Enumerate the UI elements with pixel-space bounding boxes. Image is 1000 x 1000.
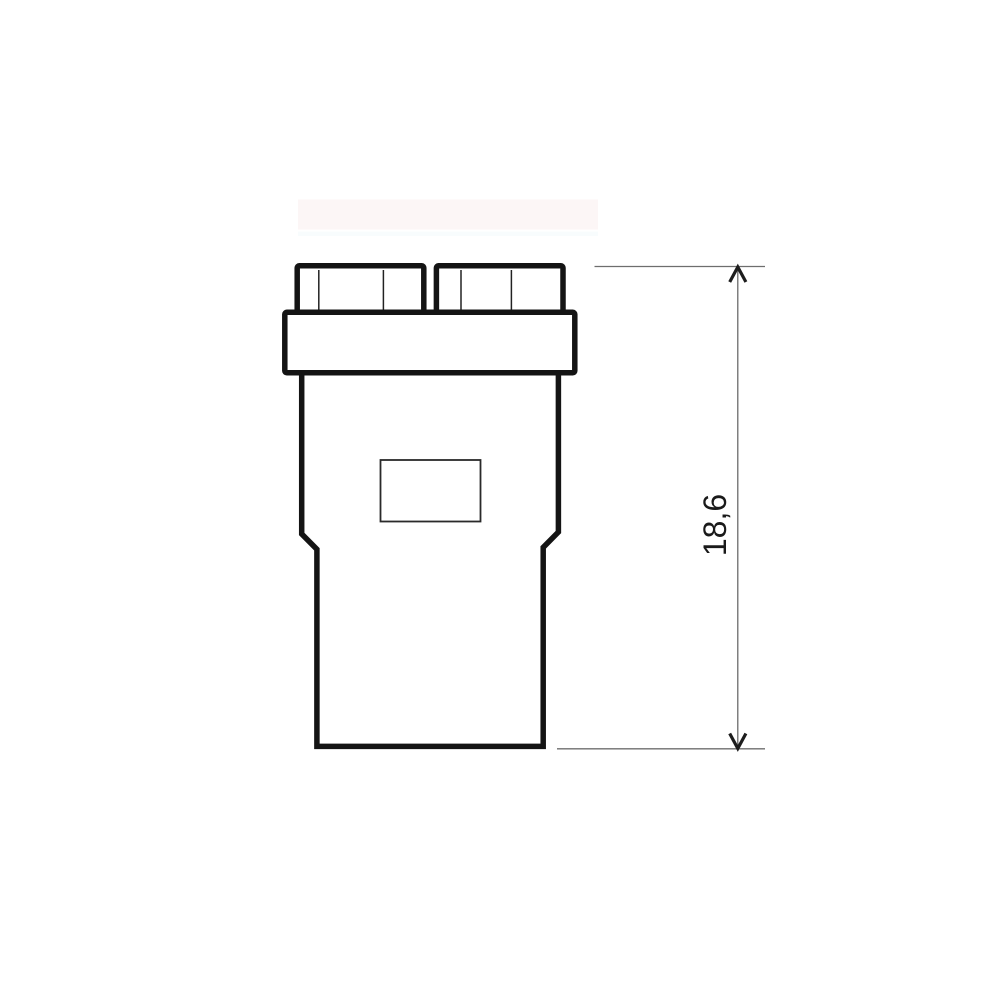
svg-text:18,6: 18,6 [697,494,733,556]
